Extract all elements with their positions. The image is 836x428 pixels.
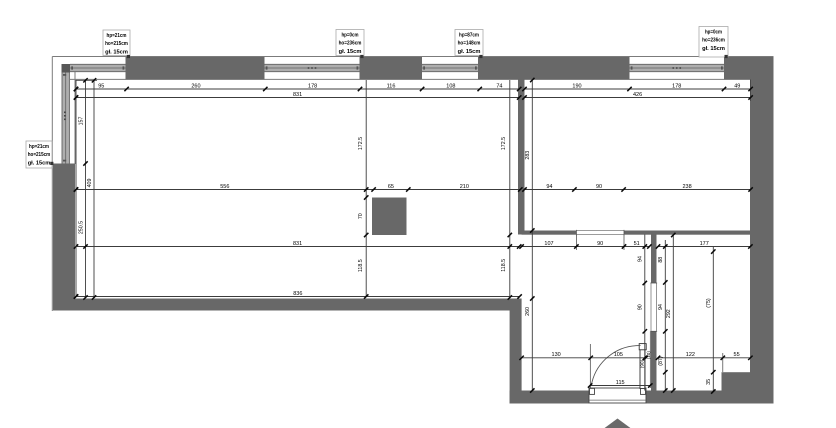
svg-text:(90): (90) bbox=[639, 359, 644, 368]
svg-text:49: 49 bbox=[734, 83, 740, 89]
svg-text:836: 836 bbox=[293, 291, 302, 297]
svg-text:157: 157 bbox=[78, 117, 84, 126]
svg-text:65: 65 bbox=[388, 184, 394, 190]
svg-text:107: 107 bbox=[544, 241, 553, 247]
svg-text:gł. 15cm: gł. 15cm bbox=[105, 49, 128, 55]
svg-text:90: 90 bbox=[597, 241, 603, 247]
svg-text:ho=215cm: ho=215cm bbox=[105, 41, 128, 47]
svg-text:ho=236cm: ho=236cm bbox=[339, 41, 362, 47]
svg-text:115: 115 bbox=[616, 380, 625, 386]
svg-text:177: 177 bbox=[700, 241, 709, 247]
svg-text:190: 190 bbox=[572, 83, 581, 89]
svg-text:118.5: 118.5 bbox=[358, 259, 364, 272]
svg-text:74: 74 bbox=[496, 83, 502, 89]
svg-text:ho=236cm: ho=236cm bbox=[702, 38, 725, 44]
svg-text:116: 116 bbox=[387, 83, 396, 89]
svg-text:292: 292 bbox=[666, 309, 672, 318]
svg-text:gł. 15cm: gł. 15cm bbox=[339, 49, 362, 55]
svg-text:hp=0cm: hp=0cm bbox=[341, 32, 358, 38]
svg-text:831: 831 bbox=[293, 92, 302, 98]
svg-text:178: 178 bbox=[672, 83, 681, 89]
svg-text:gł. 15cm: gł. 15cm bbox=[28, 160, 51, 166]
svg-text:426: 426 bbox=[633, 92, 642, 98]
svg-text:51: 51 bbox=[634, 241, 640, 247]
svg-text:118.5: 118.5 bbox=[501, 259, 507, 272]
svg-text:(87): (87) bbox=[658, 356, 664, 366]
svg-text:ho=148cm: ho=148cm bbox=[458, 41, 481, 47]
svg-text:hp=0cm: hp=0cm bbox=[705, 29, 722, 35]
svg-text:238: 238 bbox=[683, 184, 692, 190]
svg-text:409: 409 bbox=[87, 179, 93, 188]
svg-text:556: 556 bbox=[220, 184, 229, 190]
svg-text:94: 94 bbox=[546, 184, 552, 190]
svg-text:260: 260 bbox=[191, 83, 200, 89]
svg-text:130: 130 bbox=[552, 352, 561, 358]
svg-text:ho=215cm: ho=215cm bbox=[28, 152, 51, 158]
svg-text:(75): (75) bbox=[706, 298, 712, 308]
svg-text:(10): (10) bbox=[646, 351, 651, 360]
svg-text:95: 95 bbox=[98, 83, 104, 89]
svg-text:178: 178 bbox=[308, 83, 317, 89]
svg-text:105: 105 bbox=[614, 352, 623, 358]
svg-text:122: 122 bbox=[686, 352, 695, 358]
svg-text:172.5: 172.5 bbox=[501, 137, 507, 150]
svg-text:260: 260 bbox=[525, 307, 531, 316]
svg-text:94: 94 bbox=[658, 304, 664, 310]
svg-text:283: 283 bbox=[525, 151, 531, 160]
svg-text:gł. 15cm: gł. 15cm bbox=[458, 49, 481, 55]
svg-text:88: 88 bbox=[658, 257, 664, 263]
svg-text:55: 55 bbox=[734, 352, 740, 358]
svg-text:831: 831 bbox=[293, 241, 302, 247]
svg-text:250.5: 250.5 bbox=[78, 221, 84, 234]
svg-text:hp=87cm: hp=87cm bbox=[459, 32, 479, 38]
svg-text:hp=21cm: hp=21cm bbox=[29, 144, 49, 150]
svg-text:94: 94 bbox=[638, 256, 644, 262]
svg-text:hp=21cm: hp=21cm bbox=[107, 33, 127, 39]
svg-text:70: 70 bbox=[358, 213, 364, 219]
svg-text:210: 210 bbox=[460, 184, 469, 190]
svg-text:90: 90 bbox=[596, 184, 602, 190]
svg-text:90: 90 bbox=[638, 304, 644, 310]
svg-text:gł. 15cm: gł. 15cm bbox=[702, 46, 725, 52]
svg-text:35: 35 bbox=[706, 379, 712, 385]
svg-text:172.5: 172.5 bbox=[358, 137, 364, 150]
svg-text:108: 108 bbox=[446, 83, 455, 89]
